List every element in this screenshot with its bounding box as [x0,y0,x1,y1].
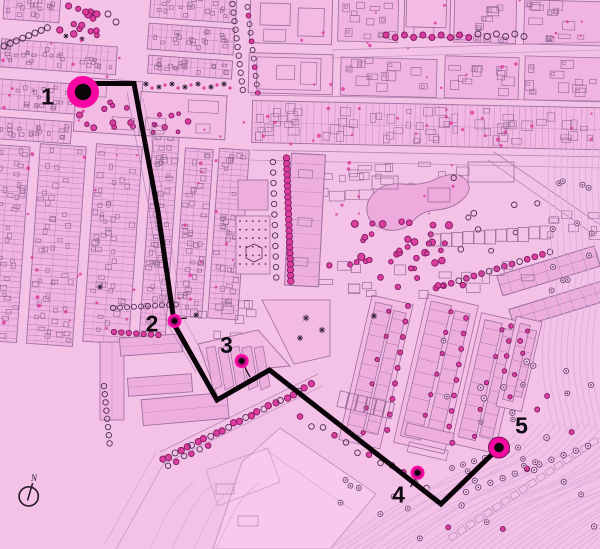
svg-text:3: 3 [220,332,233,358]
svg-text:1: 1 [41,84,54,110]
svg-text:2: 2 [146,311,159,337]
svg-text:4: 4 [392,482,405,508]
svg-text:5: 5 [515,413,528,439]
svg-text:N: N [30,473,38,483]
